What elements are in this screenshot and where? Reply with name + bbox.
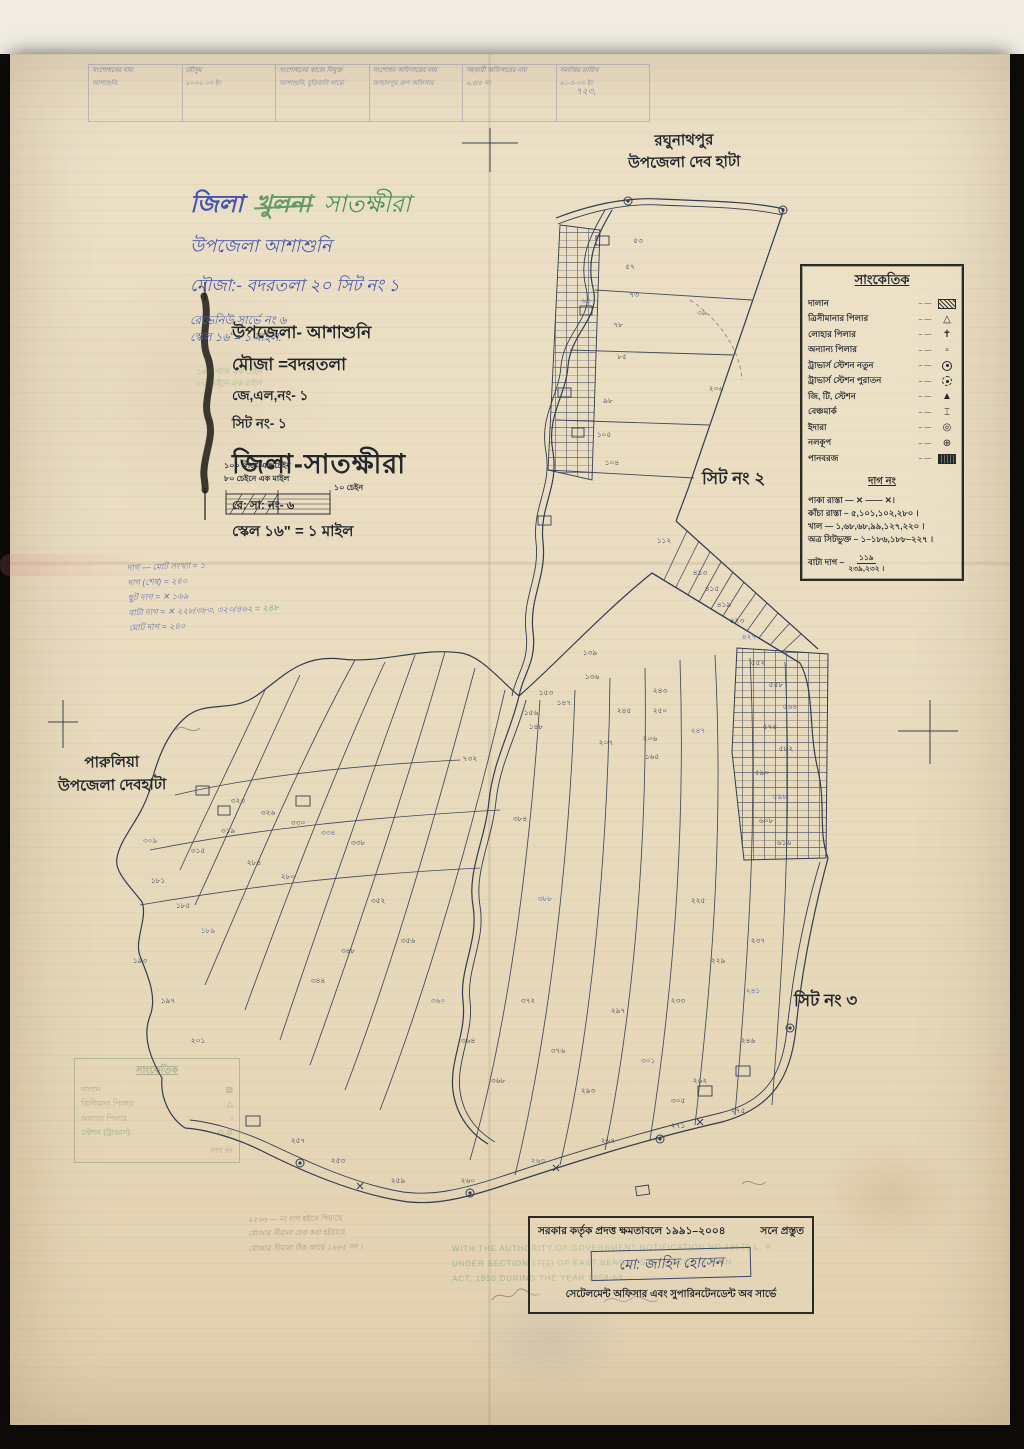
legend-dots: – — xyxy=(912,347,938,354)
bench-icon: ⌶ xyxy=(938,407,956,418)
legend-item: লোহার পিলার– —✝ xyxy=(808,327,956,343)
revision-annotation-table: সংশোধনের নাম:আশাশুনি:মৌসুম২০০২-০৩ ইংসংশো… xyxy=(88,64,650,122)
hatch-icon xyxy=(938,299,956,309)
sq-icon: ▫ xyxy=(938,345,956,356)
bata-fraction: ১১৯ ২৩৯,২৩২ । xyxy=(848,554,884,572)
well-icon: ◎ xyxy=(938,422,956,433)
annotation-cell-top: মৌসুম xyxy=(186,67,273,76)
old-district-struck: খুলনা xyxy=(256,191,311,218)
ghost-legend-symbol: △ xyxy=(227,1097,233,1111)
annotation-extra: ৭২৩, xyxy=(576,84,596,99)
annotation-cell-bottom: আশাশুনি: xyxy=(92,80,179,89)
legend-item: ইদারা– —◎ xyxy=(808,420,956,436)
legend-dots: – — xyxy=(912,316,938,323)
tri-icon: △ xyxy=(938,314,956,325)
legend-item-label: নলকূপ xyxy=(808,436,912,450)
pencil-notes: ২২৬৬ — নং দাগ হইতে গিয়াছেমৌজার সীমানা চ… xyxy=(248,1211,363,1256)
annotation-cell-top: সংশোধন অফিসারের নাম xyxy=(373,67,460,76)
scale-bar: ১০ চেইন xyxy=(222,486,342,525)
ghost-legend-box: সাংকেতিক দালান▨ত্রিসীমানা পিলার△অন্যান্য… xyxy=(74,1058,240,1163)
legend-item-label: লোহার পিলার xyxy=(808,328,912,342)
tube-icon: ⊕ xyxy=(938,438,956,449)
annotation-cell-bottom: ২০০২-০৩ ইং xyxy=(186,80,273,89)
ghost-legend-row: ত্রিসীমানা পিলার△ xyxy=(81,1097,233,1111)
tridark-icon: ▲ xyxy=(938,391,956,402)
blue-tally-notes: দাগ — মোট সংখ্যা = ১দাগ (শেষ) = ২৪০ছুট দ… xyxy=(127,555,280,635)
legend-item-label: বেঞ্চমার্ক xyxy=(808,405,912,419)
dag-line: কাঁচা রাস্তা – ৫,১০১,১০২,২৮০ । xyxy=(808,507,956,520)
legend-dots: – — xyxy=(912,455,938,462)
legend-dots: – — xyxy=(912,424,938,431)
sheet-3-label: সিট নং ৩ xyxy=(794,988,857,1016)
district-label: জিলা xyxy=(190,191,243,218)
legend-item: পানবরজ– — xyxy=(808,451,956,467)
annotation-cell-bottom: জাহানপুর গ্রুপ অফিসার xyxy=(373,80,460,89)
ghost-legend-symbol: ⊙ ⊙ xyxy=(217,1126,233,1140)
annotation-cell-top: সহকারী অফিসারের নাম xyxy=(466,67,553,76)
annotation-cell: সংশোধন অফিসারের নামজাহানপুর গ্রুপ অফিসার xyxy=(369,65,463,121)
legend-item-label: পানবরজ xyxy=(808,452,912,466)
scanned-map-sheet: ৫৩৫৭৭৩৭৮৮৫৯৮১০৫১০৪৩৯২০৬১১২৬৩৪১৩৪১৫৪১৯৪২৩… xyxy=(0,0,1024,1449)
ghost-legend-row: অন্যান্য পিলার▫ xyxy=(81,1112,233,1126)
legend-dots: – — xyxy=(912,300,938,307)
dag-line: অত্র সিটভুক্ত – ১–১৮৬,১৮৮–২২৭ । xyxy=(808,533,956,546)
chain-conversion-notes: ১০০ লিঙ্কে এক চেইন ৮০ চেইনে এক মাইল xyxy=(224,460,291,486)
ghost-legend-symbol: ▨ xyxy=(225,1083,233,1097)
upazila-line: উপজেলা আশাশুনি xyxy=(190,232,411,263)
annotation-cell-top: সংশোধনের নাম: xyxy=(92,67,179,76)
cadastral-map-drawing xyxy=(0,0,1024,1449)
bata-dag-line: বাটা দাগ – ১১৯ ২৩৯,২৩২ । xyxy=(808,554,956,572)
annotation-cell-top: সমাপ্তির তারিখ xyxy=(560,67,647,76)
printed-mouza: মৌজা =বদরতলা xyxy=(232,352,406,380)
printed-upazila: উপজেলা- আশাশুনি xyxy=(232,320,406,348)
legend-item: ট্রাভার্স স্টেশন পুরাতন– — xyxy=(808,374,956,390)
annotation-cell: সহকারী অফিসারের নাম৬,৫/৫ নং xyxy=(462,65,556,121)
legend-rows: দালান– —ত্রিসীমানার পিলার– —△লোহার পিলার… xyxy=(808,296,956,467)
legend-item-label: ত্রিসীমানার পিলার xyxy=(808,312,912,326)
annotation-cell: সংশোধনের কাজে নিযুক্তআশাশুনি, বুড়িবাটা … xyxy=(275,65,369,121)
stamp-line-1: সরকার কর্তৃক প্রদত্ত ক্ষমতাবলে ১৯৯১–২০০৪… xyxy=(538,1224,804,1241)
annotation-cell-bottom: ৬,৫/৫ নং xyxy=(466,80,553,89)
legend-item-label: ট্রাভার্স স্টেশন নতুন xyxy=(808,359,912,373)
neighbour-label-parulia: পারুলিয়া উপজেলা দেবহাটা xyxy=(58,751,167,798)
blue-note-teal: = ২৪৮ xyxy=(252,602,279,613)
dag-section-title: দাগ নং xyxy=(808,474,956,491)
pencil-note-line: মৌজার সীমানা ঠিক আছে ১৯৬৫ সন । xyxy=(248,1240,362,1256)
legend-item-label: ট্রাভার্স স্টেশন পুরাতন xyxy=(808,374,912,388)
hatch-swatch xyxy=(938,299,956,309)
legend-item: নলকূপ– —⊕ xyxy=(808,436,956,452)
circle-dashed-symbol xyxy=(942,376,952,386)
annotation-cell-bottom: আশাশুনি, বুড়িবাটা সার্ভে xyxy=(279,80,366,89)
dag-line: খাল — ১,৬৮,৬৮,৯৯,১২৭,২২০ । xyxy=(808,520,956,533)
ghost-legend-row: স্টেশন (ট্রাভার্স)⊙ ⊙ xyxy=(81,1126,233,1140)
annotation-cell-bottom: ৬১-৪-০৩ ইং xyxy=(560,80,647,89)
legend-item: জি, টি, স্টেশন– —▲ xyxy=(808,389,956,405)
ghost-legend-label: স্টেশন (ট্রাভার্স) xyxy=(81,1126,130,1140)
legend-item-label: ইদারা xyxy=(808,421,912,435)
preparation-stamp-box: সরকার কর্তৃক প্রদত্ত ক্ষমতাবলে ১৯৯১–২০০৪… xyxy=(528,1216,814,1314)
ghost-legend-label: অন্যান্য পিলার xyxy=(81,1112,127,1126)
legend-item: বেঞ্চমার্ক– —⌶ xyxy=(808,405,956,421)
legend-dots: – — xyxy=(912,409,938,416)
legend-item-label: দালান xyxy=(808,297,912,311)
legend-item-label: জি, টি, স্টেশন xyxy=(808,390,912,404)
legend-item: ত্রিসীমানার পিলার– —△ xyxy=(808,312,956,328)
legend-item: অন্যান্য পিলার– —▫ xyxy=(808,343,956,359)
annotation-cell: সমাপ্তির তারিখ৬১-৪-০৩ ইং xyxy=(556,65,651,121)
ghost-legend-row: দালান▨ xyxy=(81,1083,233,1097)
ghost-legend-symbol: ▫ xyxy=(230,1112,233,1126)
annotation-cell-top: সংশোধনের কাজে নিযুক্ত xyxy=(279,67,366,76)
cross-icon: ✝ xyxy=(938,329,956,340)
circdash-icon xyxy=(938,376,956,386)
legend-dots: – — xyxy=(912,362,938,369)
annotation-cell: সংশোধনের নাম:আশাশুনি: xyxy=(88,65,182,121)
new-district: সাতক্ষীরা xyxy=(323,191,410,218)
circle-dot-symbol xyxy=(942,361,952,371)
legend-dots: – — xyxy=(912,393,938,400)
circdot-icon xyxy=(938,361,956,371)
legend-title: সাংকেতিক xyxy=(808,271,956,292)
district-line: জিলা খুলনা সাতক্ষীরা xyxy=(190,186,411,226)
darkhatch-icon xyxy=(938,454,956,464)
ghost-legend-label: ত্রিসীমানা পিলার xyxy=(81,1097,133,1111)
legend-item-label: অন্যান্য পিলার xyxy=(808,343,912,357)
legend-box: সাংকেতিক দালান– —ত্রিসীমানার পিলার– —△লো… xyxy=(800,264,964,581)
stamp-line-3: সেটেলমেন্ট অফিসার এবং সুপারিনটেনডেন্ট অব… xyxy=(538,1287,804,1304)
legend-dots: – — xyxy=(912,440,938,447)
legend-item: ট্রাভার্স স্টেশন নতুন– — xyxy=(808,358,956,374)
legend-dots: – — xyxy=(912,331,938,338)
legend-dots: – — xyxy=(912,378,938,385)
officer-name: মো: জাহিদ হোসেন xyxy=(591,1247,752,1281)
mouza-line: মৌজা:- বদরতলা ২০ সিট নং ১ xyxy=(190,273,411,301)
annotation-cell: মৌসুম২০০২-০৩ ইং xyxy=(182,65,276,121)
sheet-2-label: সিট নং ২ xyxy=(702,466,765,494)
ghost-legend-label: দালান xyxy=(81,1083,101,1097)
printed-jl-no: জে,এল,নং- ১ xyxy=(232,385,406,408)
darkhatch-swatch xyxy=(938,454,956,464)
neighbour-label-raghunathpur: রঘুনাথপুর উপজেলা দেব হাটা xyxy=(628,129,741,174)
dag-line: পাকা রাস্তা — ✕ —— ✕। xyxy=(808,494,956,507)
scale-bar-label: ১০ চেইন xyxy=(334,482,363,495)
legend-item: দালান– — xyxy=(808,296,956,312)
printed-sheet-no: সিট নং- ১ xyxy=(232,413,406,436)
